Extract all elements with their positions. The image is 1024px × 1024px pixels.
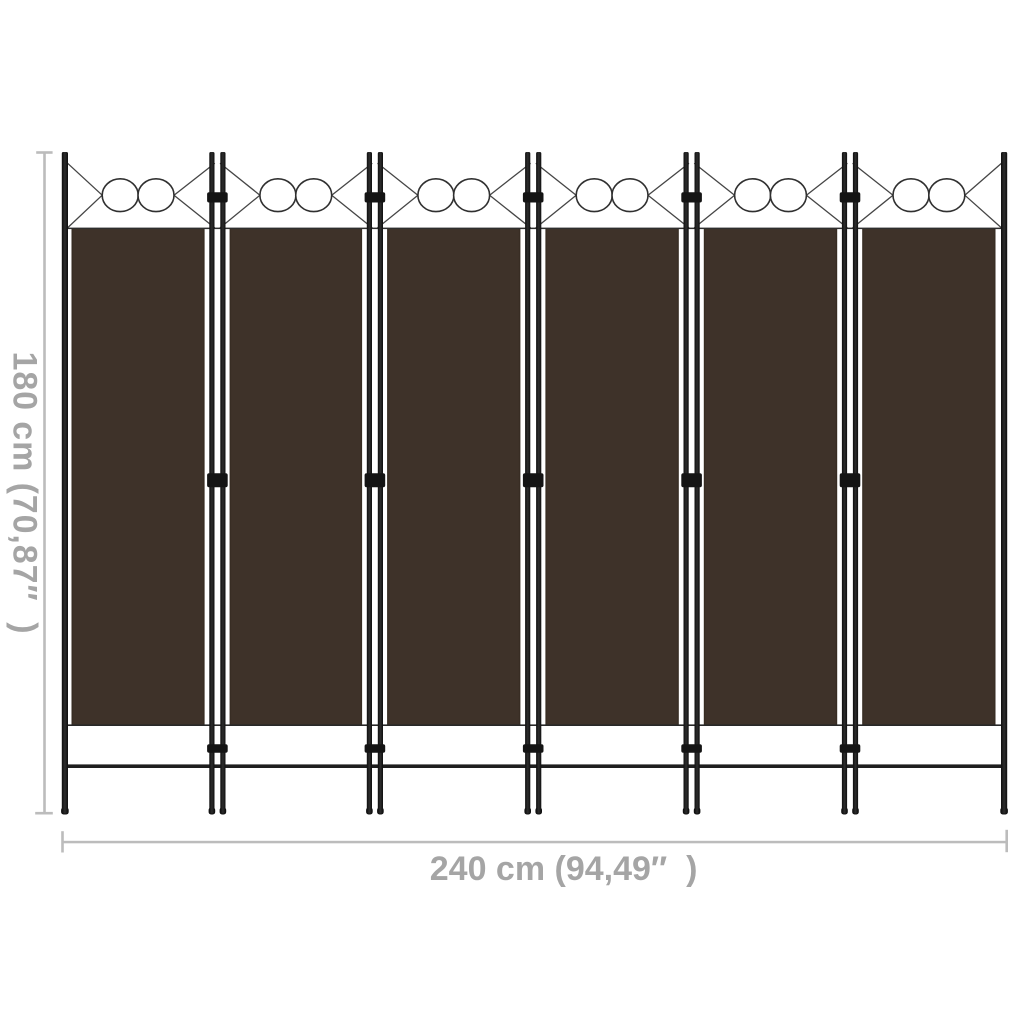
svg-text:240 cm (94,49″ ): 240 cm (94,49″ ) — [430, 850, 698, 888]
svg-text:180 cm (70,87″ ): 180 cm (70,87″ ) — [6, 352, 44, 635]
